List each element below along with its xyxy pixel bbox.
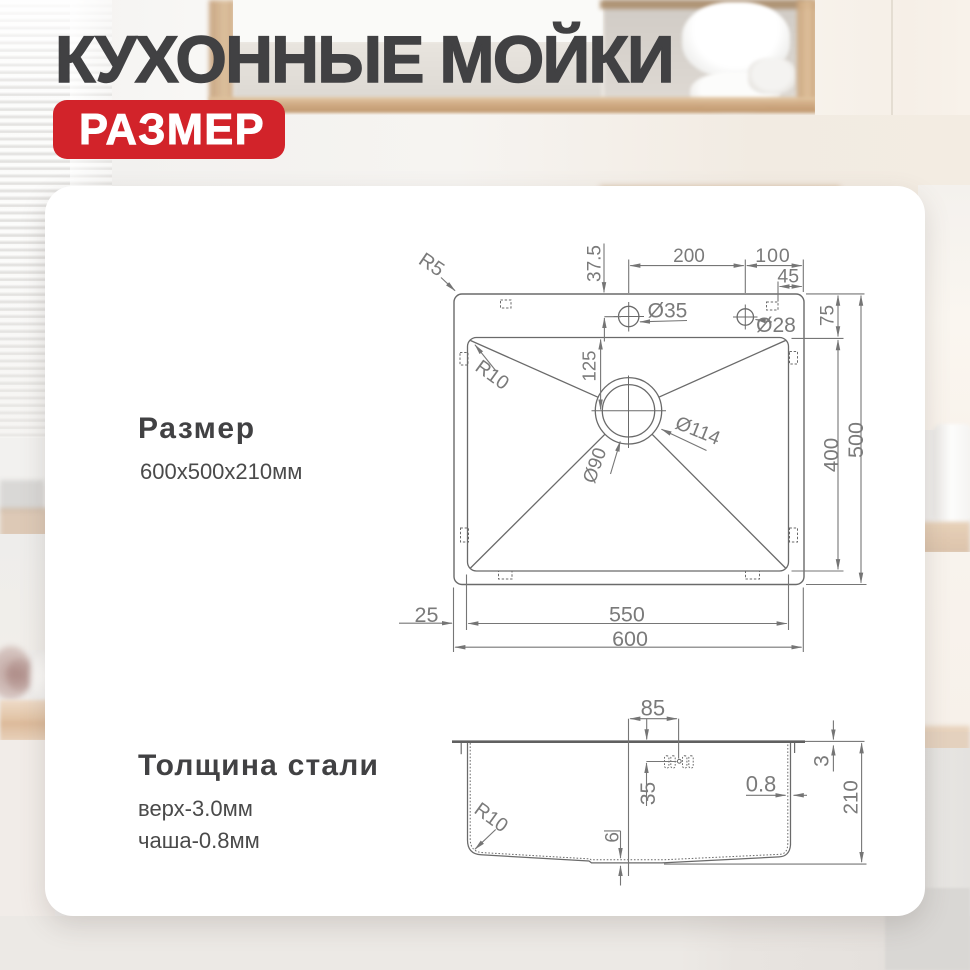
svg-text:35: 35 [637, 782, 660, 805]
svg-text:100: 100 [755, 245, 791, 267]
svg-text:200: 200 [673, 246, 705, 267]
svg-text:3: 3 [811, 755, 834, 767]
svg-text:75: 75 [818, 305, 839, 326]
svg-text:600: 600 [612, 627, 648, 651]
svg-text:37.5: 37.5 [585, 245, 606, 282]
svg-text:Ø90: Ø90 [579, 445, 611, 486]
svg-text:125: 125 [579, 351, 600, 382]
svg-text:Ø28: Ø28 [756, 314, 796, 337]
svg-text:500: 500 [844, 422, 868, 458]
svg-text:R5: R5 [415, 249, 449, 282]
svg-text:6: 6 [602, 832, 623, 843]
svg-text:Ø114: Ø114 [672, 412, 723, 450]
svg-text:Ø35: Ø35 [648, 300, 688, 323]
svg-text:85: 85 [641, 695, 665, 720]
svg-text:R10: R10 [470, 798, 512, 837]
svg-text:550: 550 [609, 602, 645, 626]
svg-text:210: 210 [839, 780, 862, 814]
svg-text:R10: R10 [471, 356, 513, 395]
svg-text:45: 45 [777, 265, 799, 287]
svg-text:0.8: 0.8 [746, 772, 777, 797]
svg-text:400: 400 [820, 438, 843, 472]
svg-text:25: 25 [415, 603, 439, 627]
